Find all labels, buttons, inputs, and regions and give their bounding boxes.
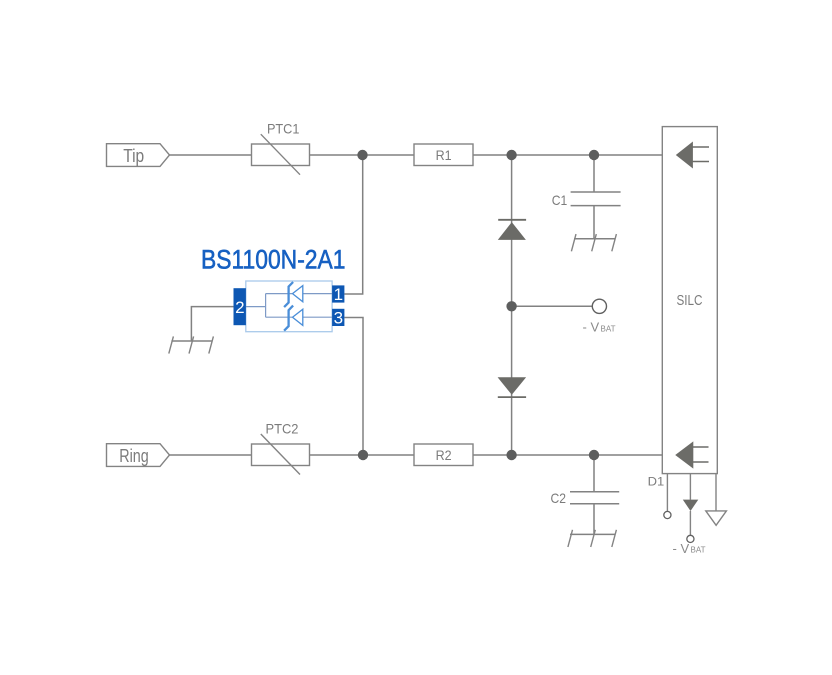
svg-text:Ring: Ring <box>119 446 149 466</box>
svg-text:R2: R2 <box>436 447 452 463</box>
svg-text:Tip: Tip <box>123 146 144 166</box>
svg-text:C2: C2 <box>551 490 567 506</box>
svg-text:1: 1 <box>334 285 343 304</box>
svg-text:C1: C1 <box>552 192 568 208</box>
svg-text:R1: R1 <box>436 147 452 163</box>
svg-text:D1: D1 <box>648 475 665 489</box>
svg-text:PTC1: PTC1 <box>267 121 300 137</box>
svg-text:2: 2 <box>235 298 244 317</box>
svg-text:- V: - V <box>673 541 690 556</box>
svg-text:BAT: BAT <box>601 325 616 334</box>
svg-text:BS1100N-2A1: BS1100N-2A1 <box>201 245 346 275</box>
svg-text:3: 3 <box>334 309 343 328</box>
svg-text:PTC2: PTC2 <box>266 421 299 437</box>
svg-text:SILC: SILC <box>677 292 703 309</box>
svg-text:BAT: BAT <box>691 546 706 555</box>
svg-text:- V: - V <box>583 320 600 335</box>
